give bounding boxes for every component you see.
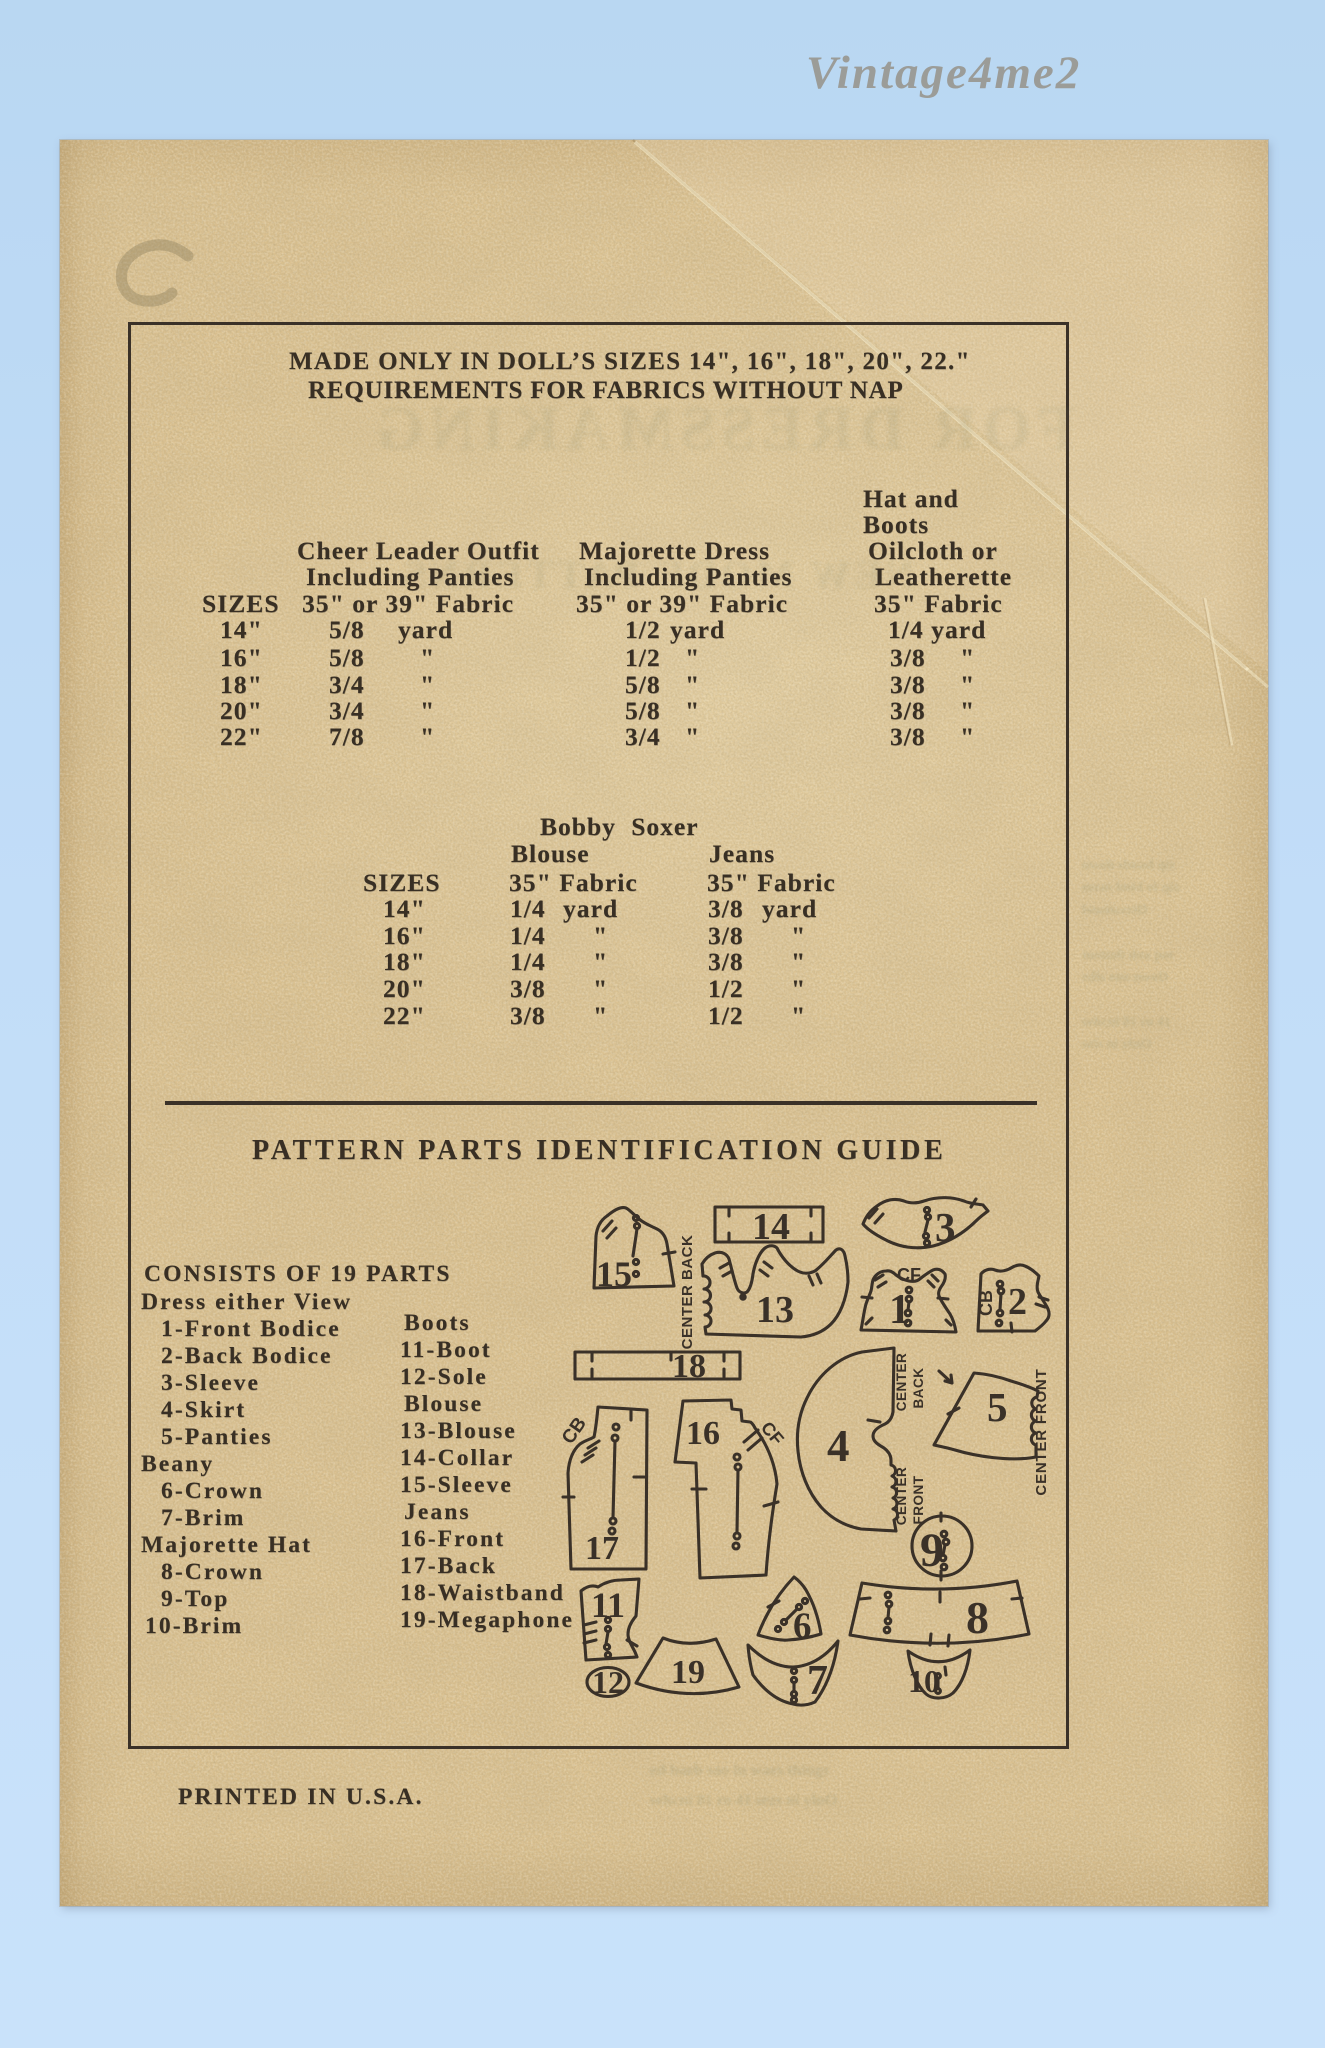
svg-text:3: 3 [935,1204,956,1250]
svg-text:12: 12 [592,1664,624,1700]
svg-text:BACK: BACK [911,1368,926,1409]
svg-text:CENTER BACK: CENTER BACK [679,1235,696,1350]
svg-text:FRONT: FRONT [911,1475,926,1524]
svg-text:CB: CB [976,1290,996,1316]
svg-text:CF: CF [897,1265,921,1285]
svg-text:16: 16 [686,1415,720,1452]
svg-text:CENTER: CENTER [894,1353,909,1412]
svg-text:9: 9 [920,1524,944,1577]
svg-text:7: 7 [807,1658,828,1704]
svg-text:8: 8 [966,1592,989,1643]
svg-text:1: 1 [889,1287,910,1333]
svg-text:14: 14 [752,1206,790,1248]
svg-text:15: 15 [596,1254,632,1294]
svg-text:13: 13 [756,1289,794,1331]
svg-text:CENTER: CENTER [894,1467,909,1526]
svg-text:2: 2 [1008,1281,1027,1323]
svg-text:17: 17 [585,1530,619,1567]
svg-text:18: 18 [672,1348,706,1385]
svg-text:11: 11 [591,1585,625,1625]
svg-text:19: 19 [671,1654,705,1691]
svg-text:CENTER FRONT: CENTER FRONT [1033,1368,1050,1495]
svg-text:5: 5 [987,1384,1008,1430]
svg-text:CB: CB [558,1414,591,1449]
svg-text:CF: CF [757,1418,788,1449]
svg-text:6: 6 [793,1606,812,1647]
svg-text:10: 10 [908,1663,940,1699]
svg-text:4: 4 [827,1421,850,1471]
